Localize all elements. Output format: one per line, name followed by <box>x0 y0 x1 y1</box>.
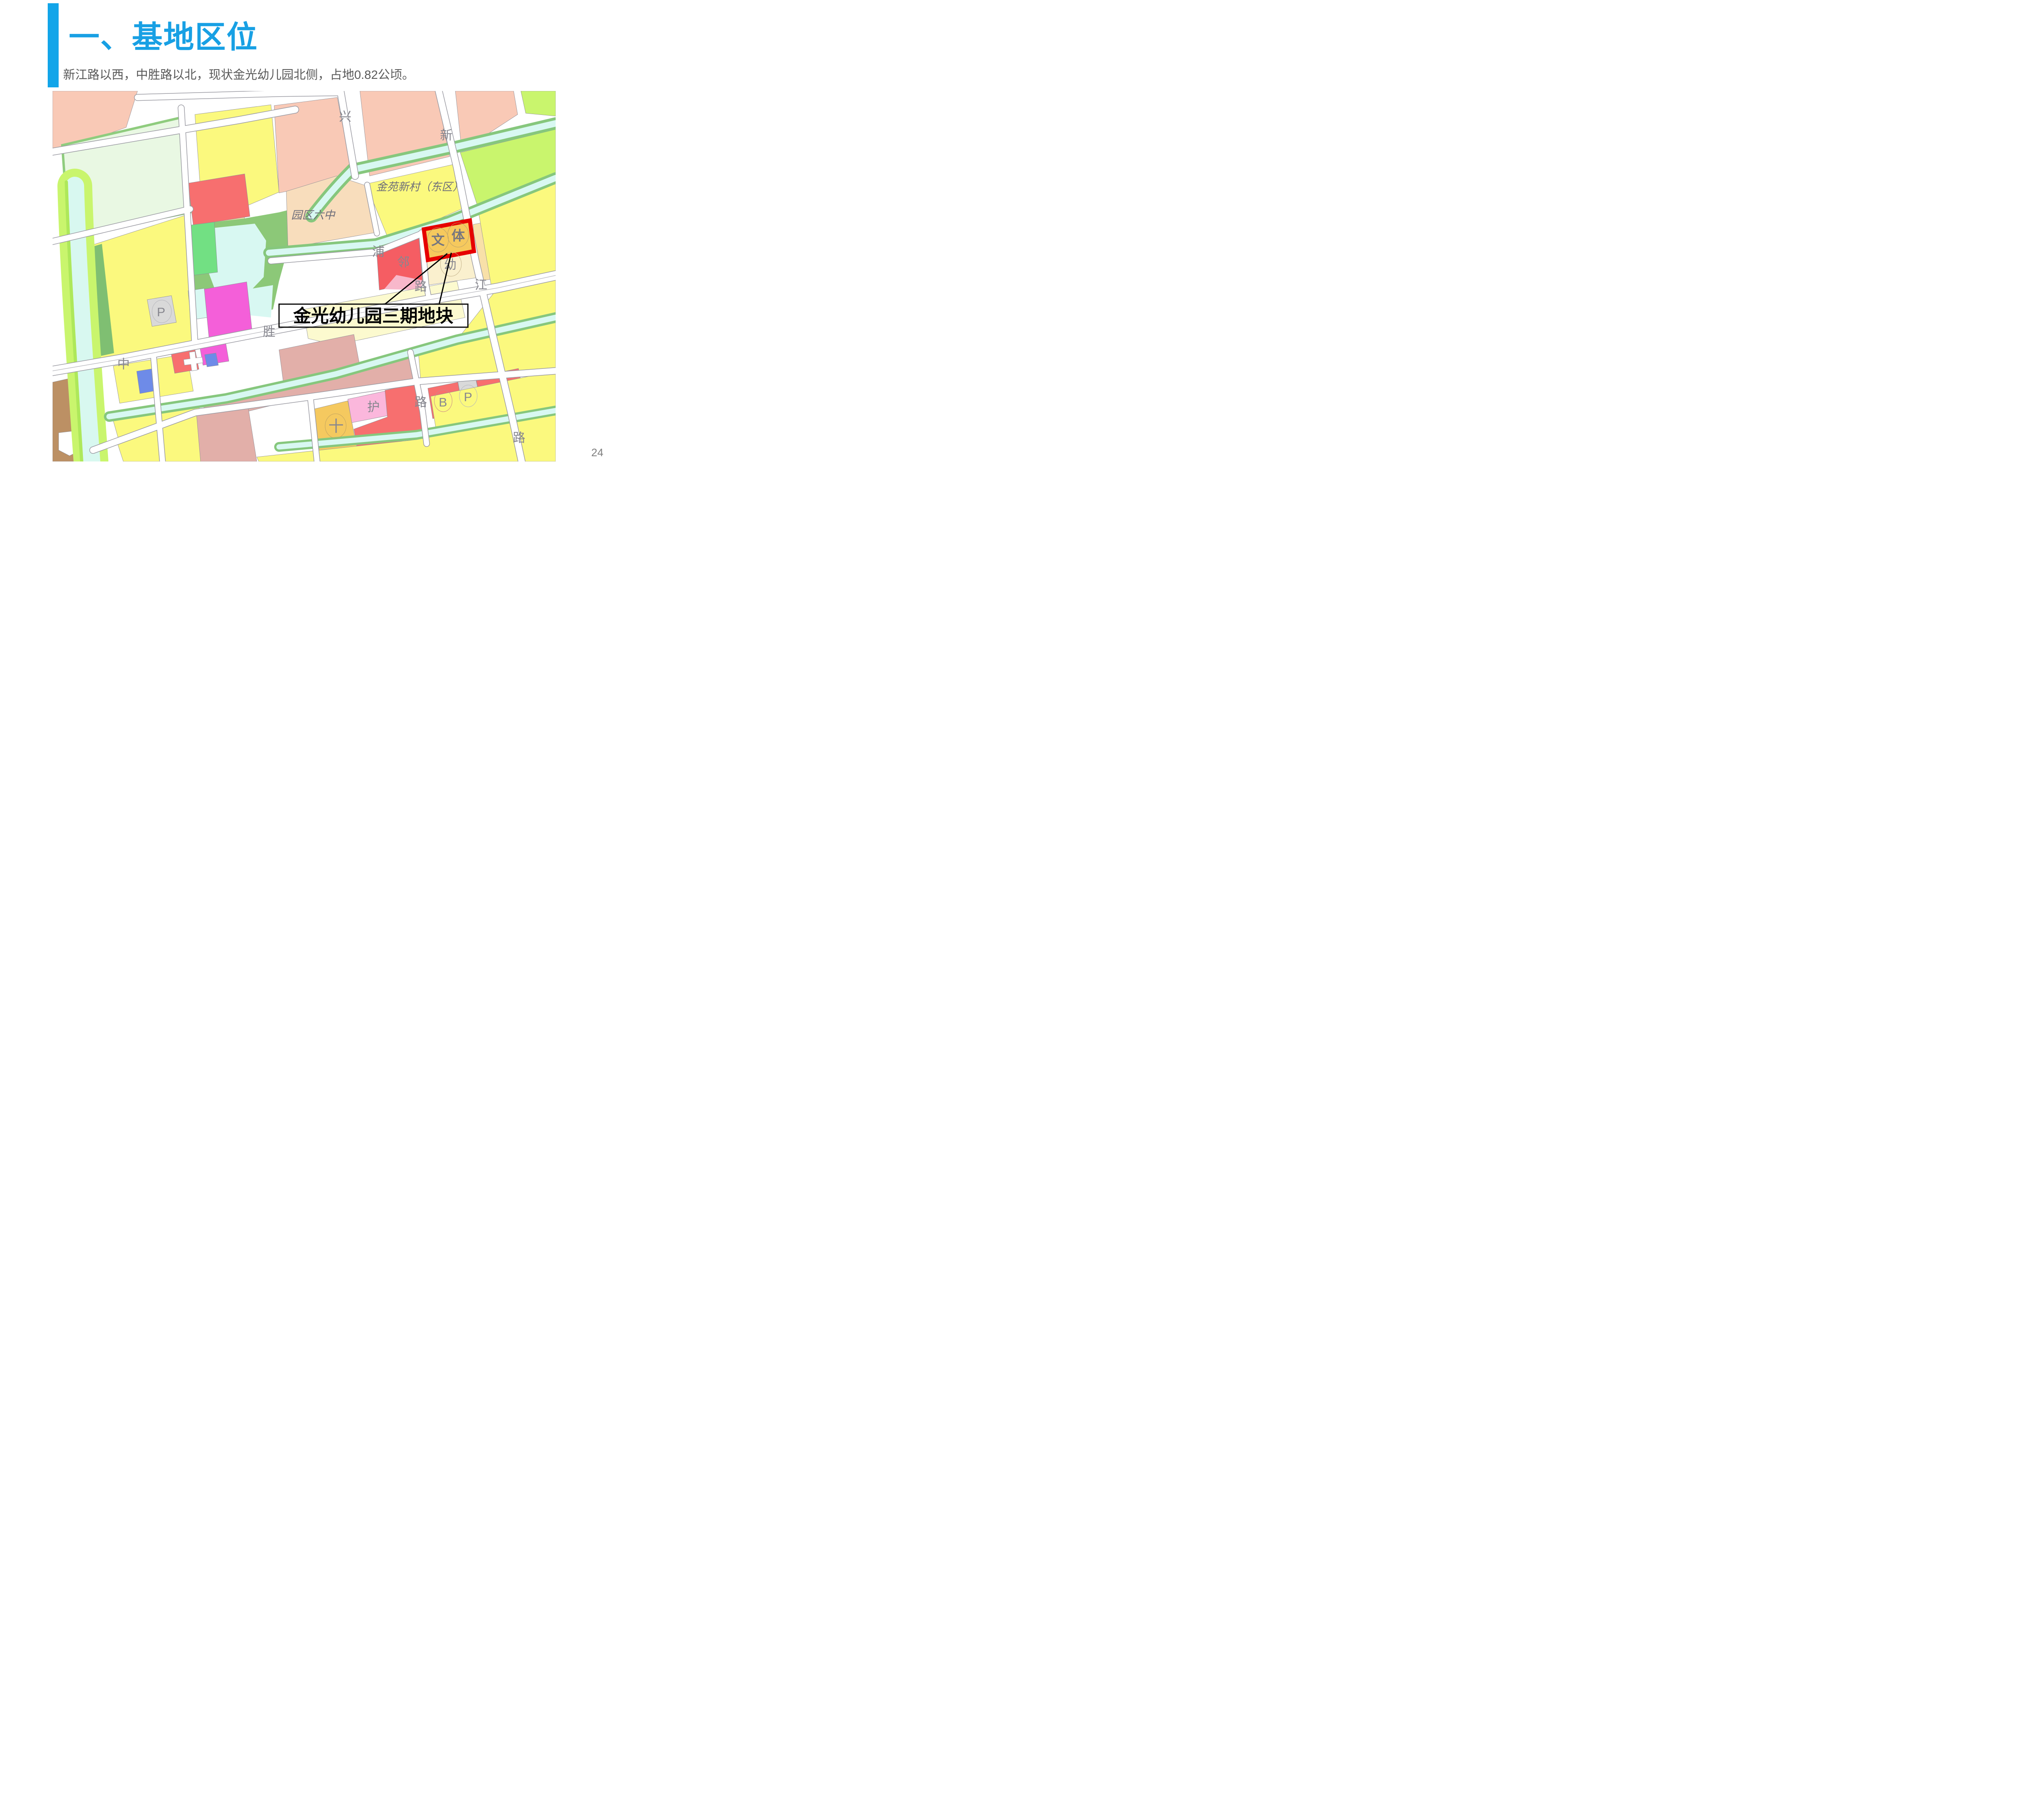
parking-label-right: P <box>464 390 472 404</box>
label-cross: 十 <box>328 418 344 435</box>
road-label-zhong: 中 <box>117 357 130 371</box>
road-label-lu-bottom: 路 <box>415 395 427 409</box>
label-b: B <box>439 395 447 409</box>
page-subtitle: 新江路以西，中胜路以北，现状金光幼儿园北侧，占地0.82公顷。 <box>63 65 414 83</box>
parcel-blue-small <box>205 353 218 367</box>
parking-label-left: P <box>157 305 165 319</box>
label-lin: 邻 <box>397 255 410 269</box>
road-label-pu: 浦 <box>372 245 385 259</box>
road-label-sheng: 胜 <box>263 325 275 339</box>
callout-label: 金光幼儿园三期地块 <box>293 306 453 326</box>
label-you: 幼 <box>444 258 457 272</box>
site-label-wen: 文 <box>431 233 445 248</box>
parcel-red-center <box>188 174 250 225</box>
zoning-map-svg: 文 体 兴 新 金苑新村（东区） 园区六中 浦 邻 幼 路 江 胜 中 P 十 … <box>53 91 556 461</box>
label-yuanqu-school: 园区六中 <box>291 209 336 221</box>
label-hu: 护 <box>367 400 380 414</box>
label-jinyuan-estate: 金苑新村（东区） <box>376 181 463 193</box>
location-map: 文 体 兴 新 金苑新村（东区） 园区六中 浦 邻 幼 路 江 胜 中 P 十 … <box>53 91 556 461</box>
road-label-xing: 兴 <box>339 110 351 124</box>
title-accent-bar <box>48 3 59 87</box>
site-label-ti: 体 <box>452 228 465 243</box>
page-number: 24 <box>591 447 603 459</box>
road-label-lu-right: 路 <box>513 431 525 445</box>
page-title: 一、基地区位 <box>69 12 258 57</box>
road-label-lu-mid: 路 <box>415 279 427 294</box>
parcel-chartreuse-corner <box>521 91 556 116</box>
slide: 一、基地区位 新江路以西，中胜路以北，现状金光幼儿园北侧，占地0.82公顷。 <box>0 0 634 476</box>
road-label-xin: 新 <box>440 128 453 142</box>
road-label-jiang: 江 <box>475 278 487 292</box>
site-parcel: 文 体 <box>424 220 474 260</box>
